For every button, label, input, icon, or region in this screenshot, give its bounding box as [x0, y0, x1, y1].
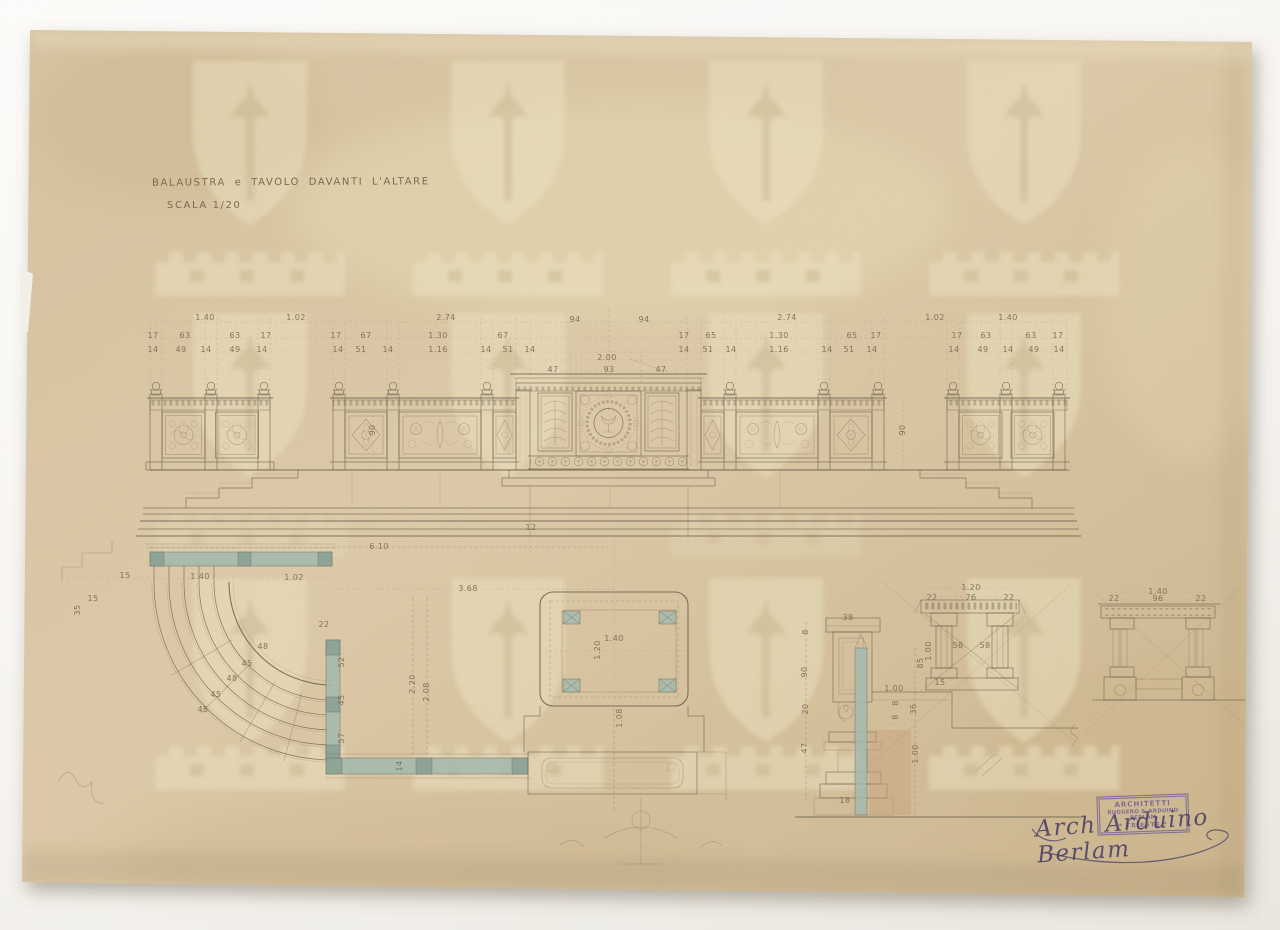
paper-sheet [20, 30, 1280, 920]
scanned-drawing-photo: BALAUSTRA e TAVOLO DAVANTI L'ALTARE SCAL… [0, 0, 1280, 930]
paper-grain [22, 30, 1252, 897]
drawing-svg [0, 0, 1280, 930]
